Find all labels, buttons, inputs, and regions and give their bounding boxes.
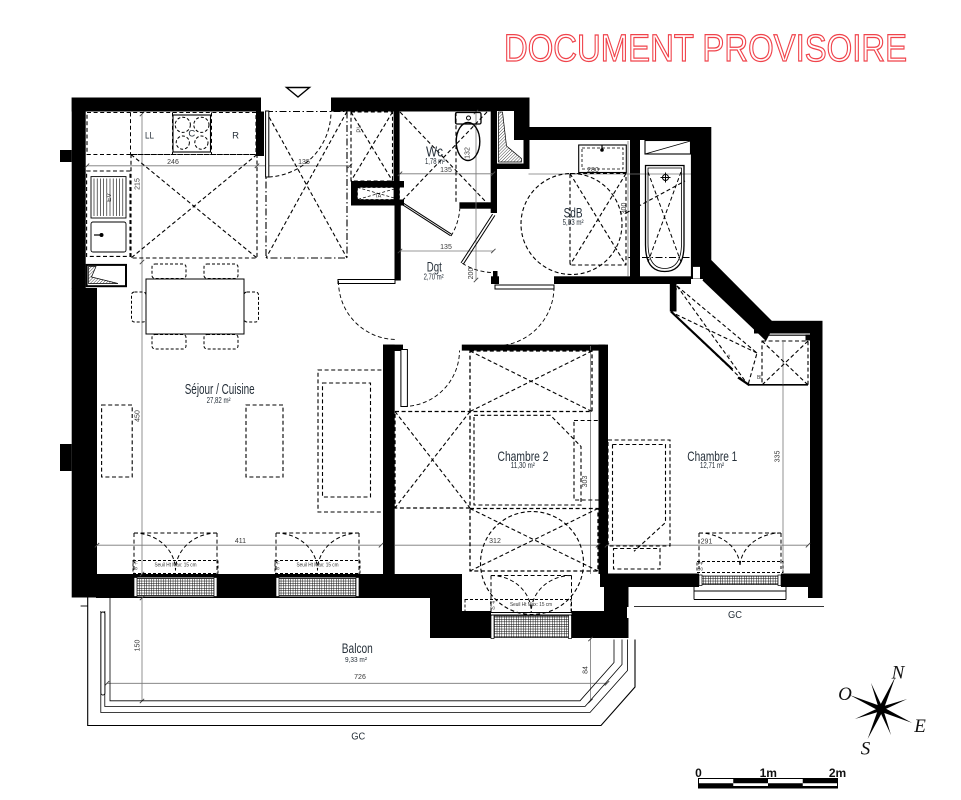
svg-text:E: E xyxy=(913,716,926,737)
svg-text:EV: EV xyxy=(106,193,113,202)
svg-text:2,70 m²: 2,70 m² xyxy=(424,273,444,282)
svg-text:BL: BL xyxy=(757,375,763,381)
svg-text:27,82 m²: 27,82 m² xyxy=(207,396,231,405)
svg-text:12,71 m²: 12,71 m² xyxy=(700,461,724,470)
svg-text:90: 90 xyxy=(275,566,280,571)
svg-text:PF: PF xyxy=(698,561,704,566)
svg-text:312: 312 xyxy=(489,538,501,545)
svg-text:335: 335 xyxy=(775,451,782,463)
svg-text:135: 135 xyxy=(440,244,452,251)
svg-text:Balcon: Balcon xyxy=(342,640,373,656)
svg-text:150: 150 xyxy=(135,640,142,652)
svg-text:N: N xyxy=(891,663,906,684)
svg-text:Seuil Ht Max: 15 cm: Seuil Ht Max: 15 cm xyxy=(510,602,552,608)
svg-text:DOCUMENT PROVISOIRE: DOCUMENT PROVISOIRE xyxy=(504,28,907,70)
svg-text:GC: GC xyxy=(351,732,365,743)
svg-text:90: 90 xyxy=(490,605,495,610)
svg-text:1m: 1m xyxy=(760,766,777,780)
svg-text:132: 132 xyxy=(465,147,472,159)
svg-text:246: 246 xyxy=(167,159,179,166)
svg-text:9,33 m²: 9,33 m² xyxy=(345,655,367,664)
svg-text:411: 411 xyxy=(235,538,246,545)
svg-text:135: 135 xyxy=(298,159,310,166)
svg-text:135: 135 xyxy=(440,167,452,174)
svg-text:303: 303 xyxy=(582,476,589,488)
svg-text:LL: LL xyxy=(145,131,154,142)
svg-text:PF: PF xyxy=(132,561,138,566)
svg-text:S: S xyxy=(861,739,871,760)
svg-text:0: 0 xyxy=(695,766,702,780)
svg-text:726: 726 xyxy=(354,674,366,681)
svg-text:450: 450 xyxy=(135,410,142,422)
svg-text:PF: PF xyxy=(274,561,280,566)
svg-text:Seuil Ht Max: 15 cm: Seuil Ht Max: 15 cm xyxy=(297,563,339,569)
svg-text:Seuil Ht Max: 15 cm: Seuil Ht Max: 15 cm xyxy=(155,563,197,569)
svg-text:84: 84 xyxy=(583,666,590,674)
svg-text:11,30 m²: 11,30 m² xyxy=(511,461,535,470)
svg-text:90: 90 xyxy=(698,566,703,571)
svg-text:200: 200 xyxy=(468,268,475,280)
svg-text:C: C xyxy=(188,129,195,140)
svg-text:1,78 m²: 1,78 m² xyxy=(425,157,445,166)
svg-text:291: 291 xyxy=(701,538,713,545)
svg-text:2m: 2m xyxy=(829,766,846,780)
svg-text:5,03 m²: 5,03 m² xyxy=(563,218,584,227)
svg-text:PF: PF xyxy=(490,600,496,605)
svg-text:215: 215 xyxy=(135,178,142,190)
svg-text:PL: PL xyxy=(357,125,363,133)
svg-text:O: O xyxy=(838,684,852,705)
svg-text:R: R xyxy=(232,131,239,142)
svg-text:TA: TA xyxy=(375,194,382,200)
svg-text:90: 90 xyxy=(133,566,138,571)
svg-text:GC: GC xyxy=(728,610,742,621)
